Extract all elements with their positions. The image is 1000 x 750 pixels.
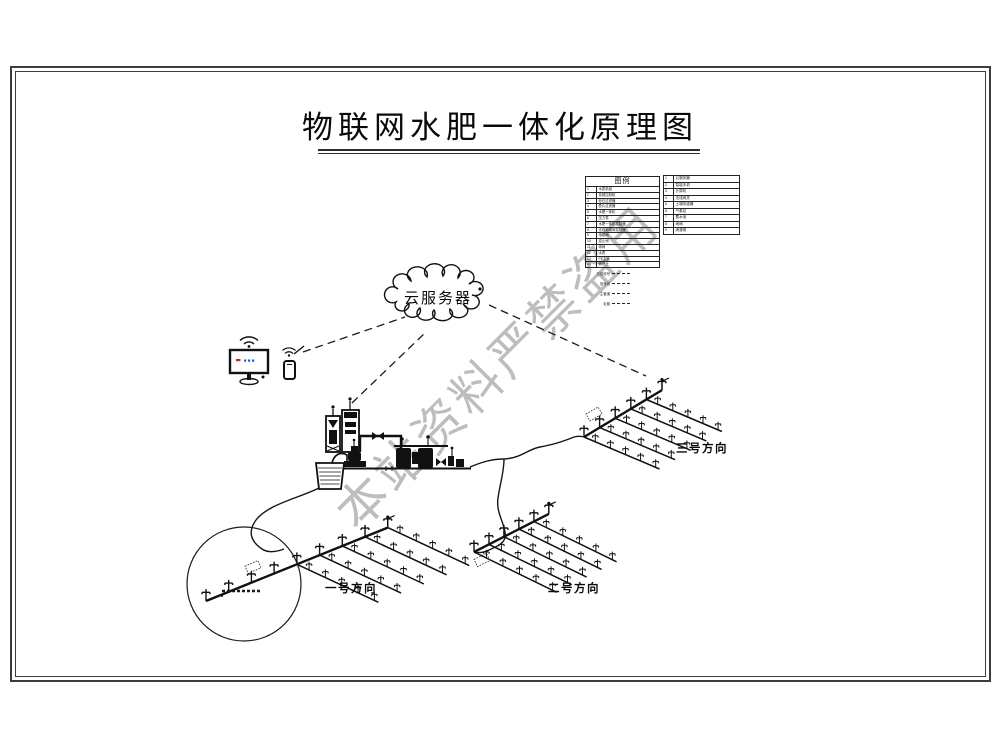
legend-row-number: 9 (664, 228, 674, 234)
legend-row: 9 滴灌带 (664, 228, 739, 234)
legend-row-number: 6 (664, 209, 674, 215)
legend-row-number: 12 (586, 251, 597, 256)
legend-row-name: 云服务器 (674, 176, 739, 182)
legend-row-number: 4 (664, 196, 674, 202)
legend-row-number: 10 (586, 239, 597, 244)
field1-label: 一号方向 (325, 581, 377, 595)
legend-row-name: 微喷头 (597, 262, 659, 267)
wifi-icon (283, 348, 296, 354)
detail-callout (187, 527, 301, 641)
legend-row-number: 2 (664, 183, 674, 189)
link-cloud-to-field3 (489, 305, 646, 376)
legend-row-name: 砂石过滤器 (597, 199, 659, 204)
legend-row-name: 水肥一体机控制器 (597, 222, 659, 227)
line-type-label: 主管道 (592, 291, 612, 296)
legend-row-name: 气象站 (674, 209, 739, 215)
legend-row-name: 球阀 (597, 245, 659, 250)
pipe-to-field1 (251, 487, 321, 552)
cloud-dot (478, 287, 481, 290)
legend-row-number: 1 (586, 187, 597, 192)
legend-row-number: 3 (586, 199, 597, 204)
legend-line-type-row: 无线信号 (592, 269, 630, 279)
cloud-label: 云服务器 (404, 290, 472, 307)
line-type-sample (612, 303, 630, 304)
page-title: 物联网水肥一体化原理图 (0, 102, 1000, 147)
line-type-label: 信号线 (592, 281, 612, 286)
legend-row: 14 微喷头 (586, 262, 659, 267)
legend-table-secondary: 1 云服务器 2 智能手机 3 计算机 4 无线网关 (663, 175, 740, 235)
legend-row-number: 9 (586, 233, 597, 238)
legend-row-name: PE主管 (597, 257, 659, 262)
legend-row-name: 闸阀 (674, 222, 739, 228)
legend-row-name: 水表 (597, 251, 659, 256)
legend-row-name: 逆止阀 (597, 239, 659, 244)
legend-row-name: 电磁阀 (597, 233, 659, 238)
fertilizer-machine-icon (326, 416, 340, 452)
legend-row-name: 土壤传感器 (674, 202, 739, 208)
legend-row-number: 1 (664, 176, 674, 182)
legend-line-type-row: 主管道 (592, 289, 630, 299)
legend-line-types: 无线信号 信号线 主管道 毛管 (592, 269, 630, 308)
legend-rows-right: 1 云服务器 2 智能手机 3 计算机 4 无线网关 (664, 176, 739, 234)
legend-row-number: 7 (664, 215, 674, 221)
legend-row-number: 13 (586, 257, 597, 262)
legend-line-type-row: 信号线 (592, 279, 630, 289)
legend-row-number: 3 (664, 189, 674, 195)
legend-row-name: 滴灌带 (674, 228, 739, 234)
pressure-gauge-icon (402, 439, 428, 446)
legend-row-name: 蓄水池 (674, 215, 739, 221)
legend-row-number: 5 (664, 202, 674, 208)
title-underline (318, 149, 700, 151)
valve-icon (436, 458, 446, 466)
field-grids (202, 378, 722, 602)
legend-row-name: 压力表 (597, 216, 659, 221)
detail-circle-icon (187, 527, 301, 641)
legend-row-number: 8 (586, 228, 597, 233)
line-type-label: 毛管 (592, 301, 612, 306)
legend-row-name: 无线网关 (674, 196, 739, 202)
legend-row-name: 水泵机组 (597, 187, 659, 192)
smartphone-station (283, 346, 305, 379)
title-underline-2 (318, 153, 700, 154)
legend-row-name: 变频控制柜 (597, 193, 659, 198)
legend-rows: 1 水泵机组 2 变频控制柜 3 砂石过滤器 4 叠片过滤器 (586, 187, 659, 267)
legend-row-number: 7 (586, 222, 597, 227)
principle-diagram-page: 本站资料严禁盗用 物联网水肥一体化原理图 图例 1 水泵机组 2 变频控制柜 3… (0, 0, 1000, 750)
legend-row-name: 计算机 (674, 189, 739, 195)
legend-row-number: 8 (664, 222, 674, 228)
legend-row-number: 11 (586, 245, 597, 250)
legend-row-number: 2 (586, 193, 597, 198)
pump-station (316, 397, 471, 489)
wireless-links (303, 305, 646, 403)
controller-cabinet-icon (342, 410, 359, 452)
legend-row-name: 无线电磁阀控制器 (597, 228, 659, 233)
legend-table-main: 图例 1 水泵机组 2 变频控制柜 3 砂石过滤器 4 (585, 176, 660, 268)
line-type-sample (612, 273, 630, 274)
line-type-sample (612, 283, 630, 284)
legend-row-name: 水肥一体机 (597, 210, 659, 215)
legend-row-name: 叠片过滤器 (597, 204, 659, 209)
field2-label: 二号方向 (548, 581, 600, 595)
legend-row-number: 4 (586, 204, 597, 209)
legend-header: 图例 (586, 177, 659, 187)
monitor-station (230, 337, 268, 385)
legend-row-number: 6 (586, 216, 597, 221)
water-tank-icon (316, 463, 344, 489)
line-type-sample (612, 293, 630, 294)
line-type-label: 无线信号 (592, 271, 612, 276)
legend-row-name: 智能手机 (674, 183, 739, 189)
valve-icon (372, 432, 384, 440)
field-grid-2 (470, 502, 616, 593)
pipe-to-field3 (504, 436, 584, 459)
link-controller-to-cloud (352, 331, 427, 403)
field-grid-3 (580, 378, 722, 469)
field-marker-boxes (245, 407, 602, 573)
legend-line-type-row: 毛管 (592, 298, 630, 308)
link-phone-to-cloud (303, 317, 405, 352)
cloud-server: 云服务器 (384, 264, 483, 321)
smartphone-icon (284, 361, 295, 379)
field3-label: 三号方向 (676, 441, 728, 455)
filter-station-icon (394, 435, 464, 468)
legend-row-number: 5 (586, 210, 597, 215)
wifi-icon (240, 337, 258, 344)
legend-row-number: 14 (586, 262, 597, 267)
pipe-main-out (470, 459, 504, 467)
